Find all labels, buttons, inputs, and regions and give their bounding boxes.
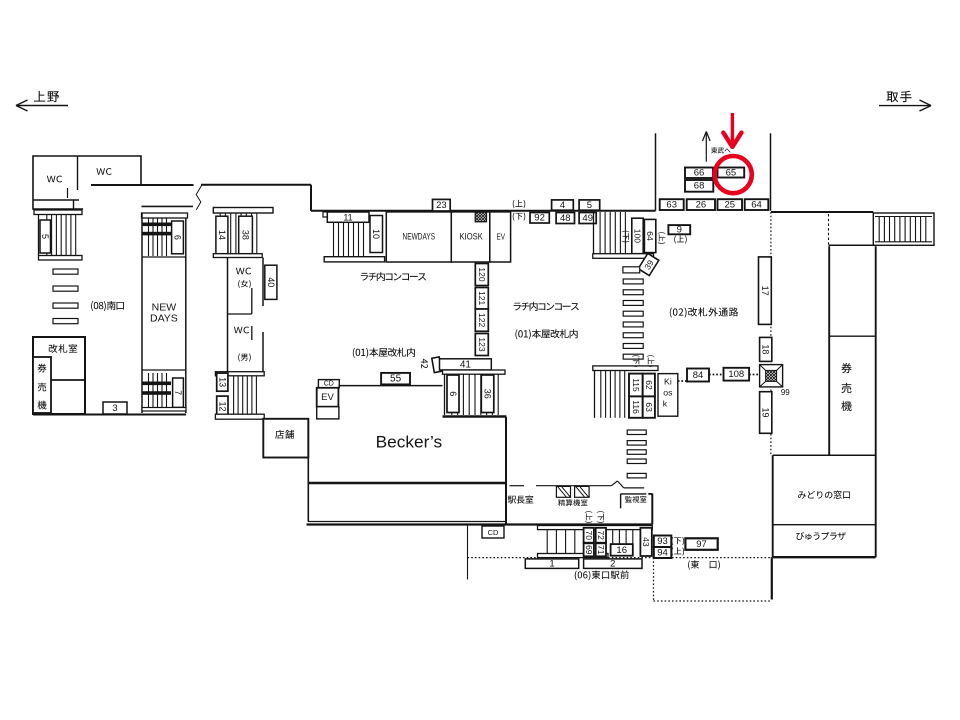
svg-text:66: 66 xyxy=(694,168,705,179)
svg-text:122: 122 xyxy=(477,313,487,327)
svg-text:72: 72 xyxy=(596,530,606,540)
svg-text:99: 99 xyxy=(781,388,790,397)
svg-text:36: 36 xyxy=(483,389,493,399)
svg-text:6: 6 xyxy=(173,235,183,240)
svg-text:EV: EV xyxy=(321,392,334,403)
svg-text:KIOSK: KIOSK xyxy=(460,232,484,243)
svg-text:64: 64 xyxy=(645,231,655,241)
svg-text:9: 9 xyxy=(677,225,682,236)
svg-text:38: 38 xyxy=(241,230,251,240)
svg-text:123: 123 xyxy=(477,337,487,351)
svg-text:10: 10 xyxy=(371,229,381,239)
svg-text:41: 41 xyxy=(460,359,472,370)
svg-text:12: 12 xyxy=(217,401,227,411)
svg-text:Ki: Ki xyxy=(664,377,672,387)
svg-text:43: 43 xyxy=(641,537,651,547)
svg-text:NEW: NEW xyxy=(152,301,177,313)
svg-text:DAYS: DAYS xyxy=(150,313,178,325)
svg-text:17: 17 xyxy=(760,286,770,296)
svg-text:1: 1 xyxy=(549,559,554,570)
svg-text:11: 11 xyxy=(343,213,352,223)
svg-text:92: 92 xyxy=(534,213,545,224)
svg-text:71: 71 xyxy=(596,545,606,555)
svg-text:49: 49 xyxy=(582,213,593,224)
svg-text:100: 100 xyxy=(633,229,643,243)
svg-text:64: 64 xyxy=(751,200,762,211)
svg-text:115: 115 xyxy=(631,378,641,392)
svg-text:23: 23 xyxy=(436,200,447,211)
svg-text:84: 84 xyxy=(693,370,704,381)
svg-text:69: 69 xyxy=(584,545,594,555)
svg-text:26: 26 xyxy=(696,200,707,211)
svg-text:14: 14 xyxy=(217,230,227,240)
svg-text:7: 7 xyxy=(173,390,183,395)
svg-text:120: 120 xyxy=(477,267,487,281)
svg-text:18: 18 xyxy=(761,344,771,354)
svg-text:NEWDAYS: NEWDAYS xyxy=(403,232,436,243)
svg-text:os: os xyxy=(663,388,673,398)
svg-text:16: 16 xyxy=(616,545,627,556)
svg-text:40: 40 xyxy=(266,277,276,287)
svg-text:65: 65 xyxy=(726,167,737,178)
svg-text:k: k xyxy=(663,399,668,409)
svg-text:63: 63 xyxy=(666,200,677,211)
svg-text:CD: CD xyxy=(488,528,499,537)
svg-text:121: 121 xyxy=(477,291,487,305)
svg-text:13: 13 xyxy=(217,377,227,387)
svg-text:62: 62 xyxy=(644,380,654,390)
svg-text:116: 116 xyxy=(631,400,641,414)
svg-text:EV: EV xyxy=(496,232,505,241)
svg-text:108: 108 xyxy=(728,369,744,380)
svg-text:6: 6 xyxy=(448,391,458,396)
svg-text:97: 97 xyxy=(696,539,707,550)
svg-text:63: 63 xyxy=(644,402,654,412)
svg-text:2: 2 xyxy=(610,559,615,570)
svg-text:5: 5 xyxy=(40,234,50,239)
svg-text:94: 94 xyxy=(657,547,668,558)
svg-text:Becker’s: Becker’s xyxy=(376,433,443,452)
svg-text:70: 70 xyxy=(584,530,594,540)
svg-text:3: 3 xyxy=(112,403,117,414)
svg-text:19: 19 xyxy=(761,407,771,417)
svg-text:93: 93 xyxy=(657,536,668,547)
svg-text:CD: CD xyxy=(324,381,334,388)
svg-text:25: 25 xyxy=(725,200,736,211)
svg-text:5: 5 xyxy=(587,200,592,211)
svg-text:68: 68 xyxy=(694,181,705,192)
svg-text:48: 48 xyxy=(560,213,571,224)
svg-text:55: 55 xyxy=(390,374,402,385)
svg-text:4: 4 xyxy=(560,200,565,211)
